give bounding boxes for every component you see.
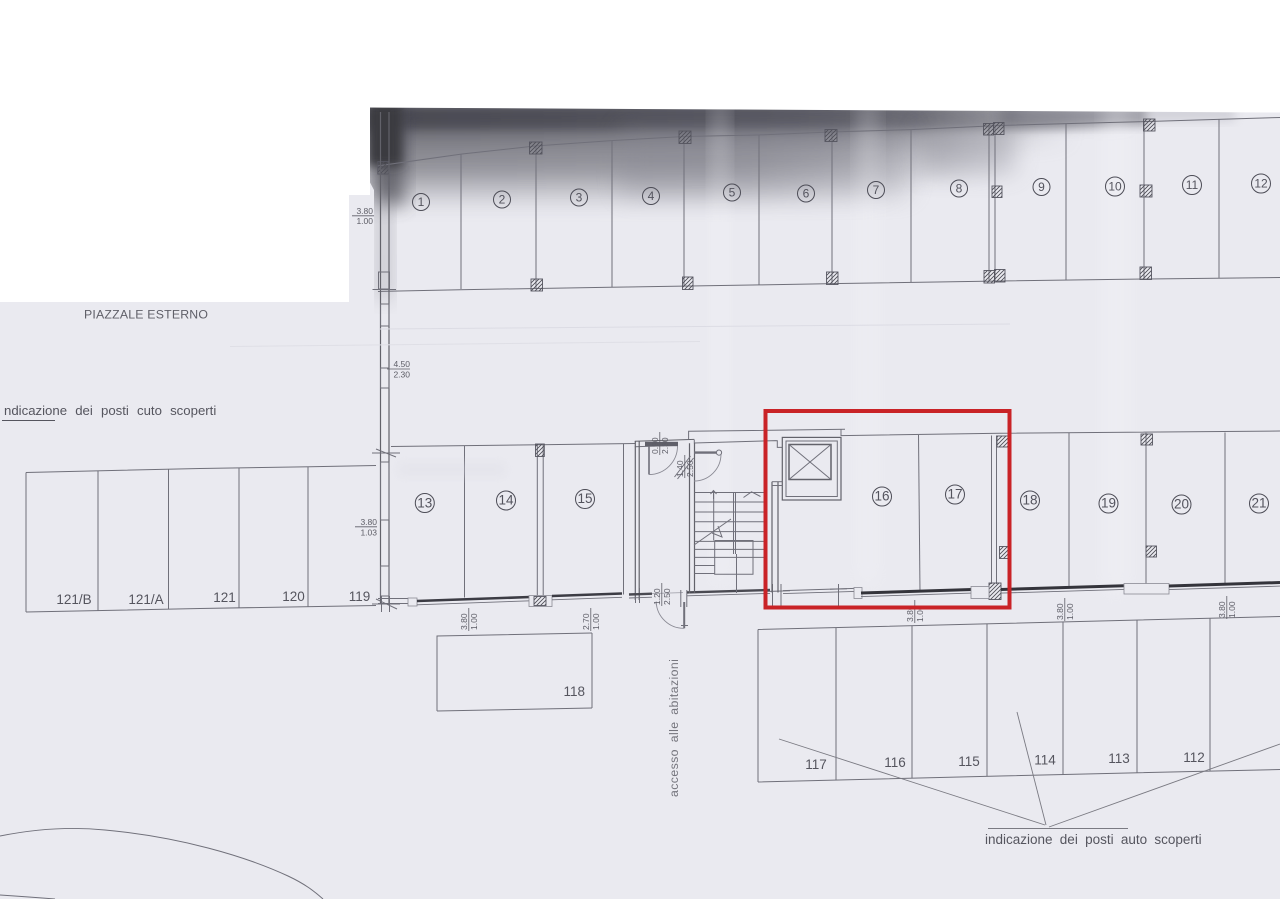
- svg-text:2.30: 2.30: [660, 437, 670, 454]
- svg-text:8: 8: [956, 182, 963, 196]
- svg-text:9: 9: [1038, 180, 1045, 194]
- svg-text:1.00: 1.00: [469, 613, 479, 630]
- svg-text:114: 114: [1034, 753, 1056, 768]
- svg-text:2.30: 2.30: [393, 370, 410, 380]
- svg-text:17: 17: [947, 487, 962, 502]
- svg-text:14: 14: [498, 493, 514, 508]
- svg-text:116: 116: [884, 755, 906, 770]
- svg-text:121/A: 121/A: [128, 592, 163, 607]
- svg-text:113: 113: [1108, 751, 1130, 766]
- svg-text:PIAZZALE ESTERNO: PIAZZALE ESTERNO: [84, 308, 208, 322]
- svg-text:1.00: 1.00: [1065, 603, 1075, 620]
- svg-text:2.70: 2.70: [581, 613, 591, 630]
- svg-text:2.50: 2.50: [685, 460, 695, 477]
- svg-text:4.50: 4.50: [393, 359, 410, 369]
- svg-text:5: 5: [729, 186, 736, 200]
- svg-text:19: 19: [1101, 496, 1116, 511]
- svg-text:12: 12: [1254, 177, 1268, 191]
- svg-text:1.40: 1.40: [675, 460, 685, 477]
- svg-text:3.80: 3.80: [356, 206, 373, 216]
- svg-text:6: 6: [803, 187, 810, 201]
- svg-text:3.80: 3.80: [1217, 601, 1227, 618]
- svg-text:accesso alle abitazioni: accesso alle abitazioni: [667, 659, 681, 797]
- svg-text:1.03: 1.03: [360, 528, 377, 538]
- svg-text:3.80: 3.80: [459, 613, 469, 630]
- svg-text:3.80: 3.80: [1055, 603, 1065, 620]
- svg-text:120: 120: [282, 589, 305, 604]
- svg-text:18: 18: [1022, 493, 1037, 508]
- svg-text:121: 121: [213, 590, 236, 605]
- svg-text:15: 15: [577, 491, 592, 506]
- svg-text:ndicazione dei posti cuto scop: ndicazione dei posti cuto scoperti: [4, 403, 216, 418]
- svg-text:20: 20: [1174, 497, 1189, 512]
- svg-text:10: 10: [1108, 180, 1122, 194]
- svg-text:119: 119: [349, 589, 371, 604]
- svg-text:3: 3: [576, 191, 583, 205]
- svg-text:115: 115: [958, 754, 980, 769]
- svg-text:0.90: 0.90: [650, 437, 660, 454]
- svg-text:2: 2: [499, 193, 506, 207]
- svg-text:2.50: 2.50: [662, 588, 672, 605]
- svg-text:13: 13: [417, 496, 432, 511]
- svg-text:3.80: 3.80: [360, 517, 377, 527]
- svg-text:121/B: 121/B: [56, 592, 91, 607]
- svg-text:7: 7: [873, 183, 880, 197]
- svg-text:1.00: 1.00: [591, 613, 601, 630]
- svg-text:112: 112: [1183, 750, 1205, 765]
- svg-text:16: 16: [874, 489, 889, 504]
- svg-text:11: 11: [1186, 178, 1199, 192]
- svg-text:1.20: 1.20: [652, 588, 662, 605]
- svg-text:118: 118: [563, 684, 585, 699]
- svg-text:4: 4: [648, 189, 655, 203]
- svg-text:1.00: 1.00: [1227, 601, 1237, 618]
- svg-text:1: 1: [418, 195, 425, 209]
- svg-text:indicazione dei posti auto sco: indicazione dei posti auto scoperti: [985, 832, 1202, 847]
- svg-text:1.00: 1.00: [356, 216, 373, 226]
- svg-text:117: 117: [805, 757, 827, 772]
- svg-text:21: 21: [1251, 496, 1266, 511]
